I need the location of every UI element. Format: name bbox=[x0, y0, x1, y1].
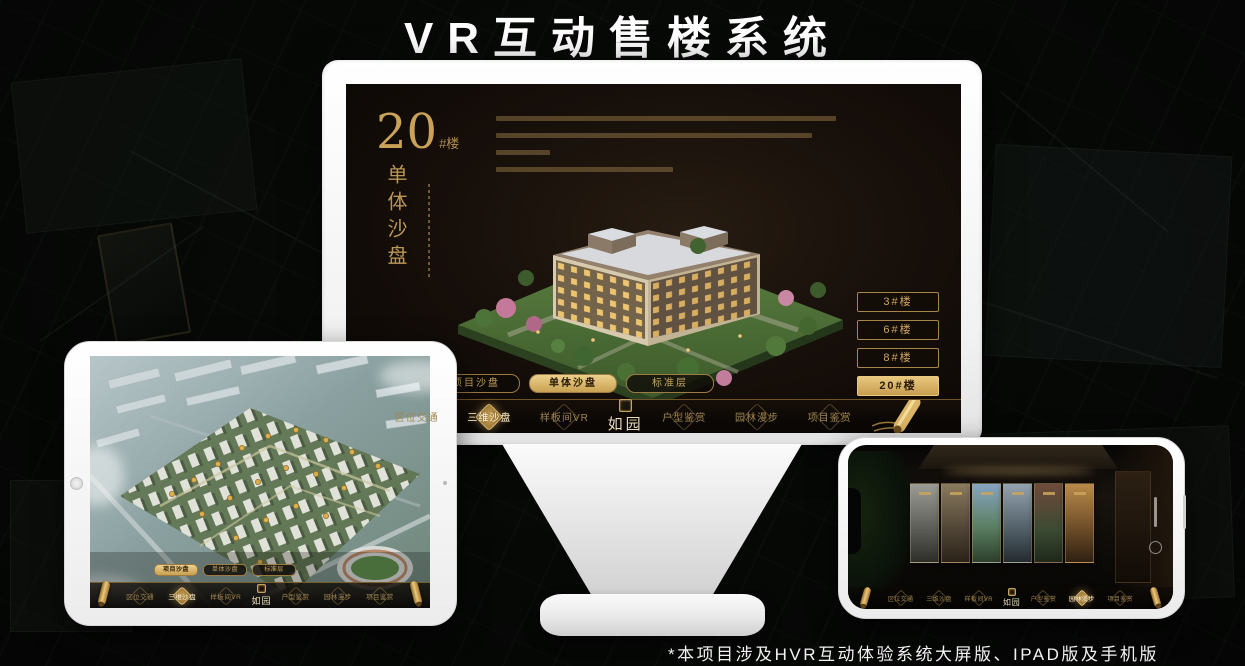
nav-item-unit-plans[interactable]: 户型鉴赏 bbox=[652, 403, 716, 431]
description-line bbox=[496, 133, 812, 138]
nav-item-project-gallery[interactable]: 项目鉴赏 bbox=[798, 403, 862, 431]
scene-panel-landscape[interactable] bbox=[1034, 483, 1063, 563]
background-plaque bbox=[97, 222, 191, 345]
interior-ceiling bbox=[918, 445, 1118, 469]
ipad-sub-tab-single-sandtable[interactable]: 单体沙盘 bbox=[203, 564, 247, 576]
ipad-sub-tab-project-sandtable[interactable]: 项目沙盘 bbox=[154, 564, 198, 576]
seal-icon bbox=[619, 399, 632, 412]
phone-scrollbar[interactable] bbox=[1154, 497, 1157, 527]
scene-panel-courtyard[interactable] bbox=[910, 483, 939, 563]
seal-icon bbox=[1008, 588, 1016, 596]
sub-tab-bar: 项目沙盘 单体沙盘 标准层 bbox=[432, 374, 714, 393]
ipad-nav-item-location-traffic[interactable]: 区位交通 bbox=[122, 585, 158, 607]
phone-nav-item-location-traffic[interactable]: 区位交通 bbox=[885, 589, 917, 607]
ipad-brand-logo[interactable]: 如园 bbox=[251, 584, 271, 607]
seal-icon bbox=[257, 584, 266, 593]
page-canvas: VR互动售楼系统 20#楼 单体沙盘 bbox=[0, 0, 1245, 666]
panel-label-tag bbox=[1043, 492, 1055, 495]
panel-label-tag bbox=[1012, 492, 1024, 495]
phone-nav-item-unit-plans[interactable]: 户型鉴赏 bbox=[1028, 589, 1060, 607]
building-3d-model[interactable] bbox=[388, 150, 908, 400]
nav-item-model-room-vr[interactable]: 样板间VR bbox=[530, 403, 599, 431]
floor-button-6[interactable]: 6#楼 bbox=[857, 320, 939, 340]
monitor-stand-base bbox=[540, 594, 765, 636]
monitor-stand-neck bbox=[502, 444, 802, 596]
ipad-nav-item-garden-walk[interactable]: 园林漫步 bbox=[320, 585, 356, 607]
interior-doorway bbox=[1115, 471, 1151, 583]
panel-label-tag bbox=[950, 492, 962, 495]
compass-icon[interactable] bbox=[1149, 541, 1162, 554]
nav-item-3d-sandtable[interactable]: 三维沙盘 bbox=[457, 403, 521, 431]
scene-panel-lobby[interactable] bbox=[1065, 483, 1094, 563]
scene-panel-building[interactable] bbox=[1003, 483, 1032, 563]
phone-nav-item-model-room-vr[interactable]: 样板间VR bbox=[962, 589, 996, 607]
scroll-handle-icon[interactable] bbox=[870, 400, 922, 434]
phone-nav-bar: 区位交通 三维沙盘 样板间VR 如园 户型鉴赏 园林漫步 bbox=[848, 587, 1173, 609]
background-map-block bbox=[11, 58, 258, 233]
ipad-nav-bar: 区位交通 三维沙盘 样板间VR 如园 户型鉴赏 园林漫步 bbox=[90, 582, 430, 608]
ipad-screen: 项目沙盘 单体沙盘 标准层 区位交通 三维沙盘 样板间VR 如园 bbox=[90, 356, 430, 608]
ipad-nav-item-3d-sandtable[interactable]: 三维沙盘 bbox=[164, 585, 200, 607]
floor-button-3[interactable]: 3#楼 bbox=[857, 292, 939, 312]
scene-panel-garden[interactable] bbox=[972, 483, 1001, 563]
background-map-block bbox=[985, 144, 1233, 368]
phone-notch bbox=[848, 488, 861, 554]
phone-side-button bbox=[1183, 495, 1186, 529]
footnote-caption: *本项目涉及HVR互动体验系统大屏版、IPAD版及手机版 bbox=[668, 640, 1159, 665]
phone-nav-item-3d-sandtable[interactable]: 三维沙盘 bbox=[923, 589, 955, 607]
ipad-nav-item-model-room-vr[interactable]: 样板间VR bbox=[206, 585, 245, 607]
phone-nav-item-project-gallery[interactable]: 项目鉴赏 bbox=[1104, 589, 1136, 607]
panel-label-tag bbox=[981, 492, 993, 495]
ipad-nav-item-unit-plans[interactable]: 户型鉴赏 bbox=[278, 585, 314, 607]
page-title: VR互动售楼系统 bbox=[0, 2, 1245, 66]
phone-screen: 区位交通 三维沙盘 样板间VR 如园 户型鉴赏 园林漫步 bbox=[848, 445, 1173, 609]
sub-tab-standard-floor[interactable]: 标准层 bbox=[626, 374, 714, 393]
description-line bbox=[496, 116, 836, 121]
phone-nav-item-garden-walk[interactable]: 园林漫步 bbox=[1066, 589, 1098, 607]
ipad-home-button[interactable] bbox=[70, 477, 83, 490]
unit-suffix: #楼 bbox=[439, 136, 459, 151]
scene-panel-interior[interactable] bbox=[941, 483, 970, 563]
panel-label-tag bbox=[1074, 492, 1086, 495]
ipad-sub-tab-standard-floor[interactable]: 标准层 bbox=[252, 564, 296, 576]
ipad-sub-tab-bar: 项目沙盘 单体沙盘 标准层 bbox=[154, 564, 296, 576]
sub-tab-single-sandtable[interactable]: 单体沙盘 bbox=[529, 374, 617, 393]
ipad-camera bbox=[443, 481, 447, 485]
brand-logo[interactable]: 如园 bbox=[608, 399, 644, 433]
floor-button-8[interactable]: 8#楼 bbox=[857, 348, 939, 368]
floor-button-20[interactable]: 20#楼 bbox=[857, 376, 939, 396]
ceiling-light-glow bbox=[944, 467, 1094, 475]
nav-item-garden-walk[interactable]: 园林漫步 bbox=[725, 403, 789, 431]
ipad-nav-item-project-gallery[interactable]: 项目鉴赏 bbox=[362, 585, 398, 607]
phone-brand-logo[interactable]: 如园 bbox=[1003, 588, 1021, 608]
floor-button-group: 3#楼 6#楼 8#楼 20#楼 bbox=[857, 292, 939, 396]
panel-label-tag bbox=[919, 492, 931, 495]
